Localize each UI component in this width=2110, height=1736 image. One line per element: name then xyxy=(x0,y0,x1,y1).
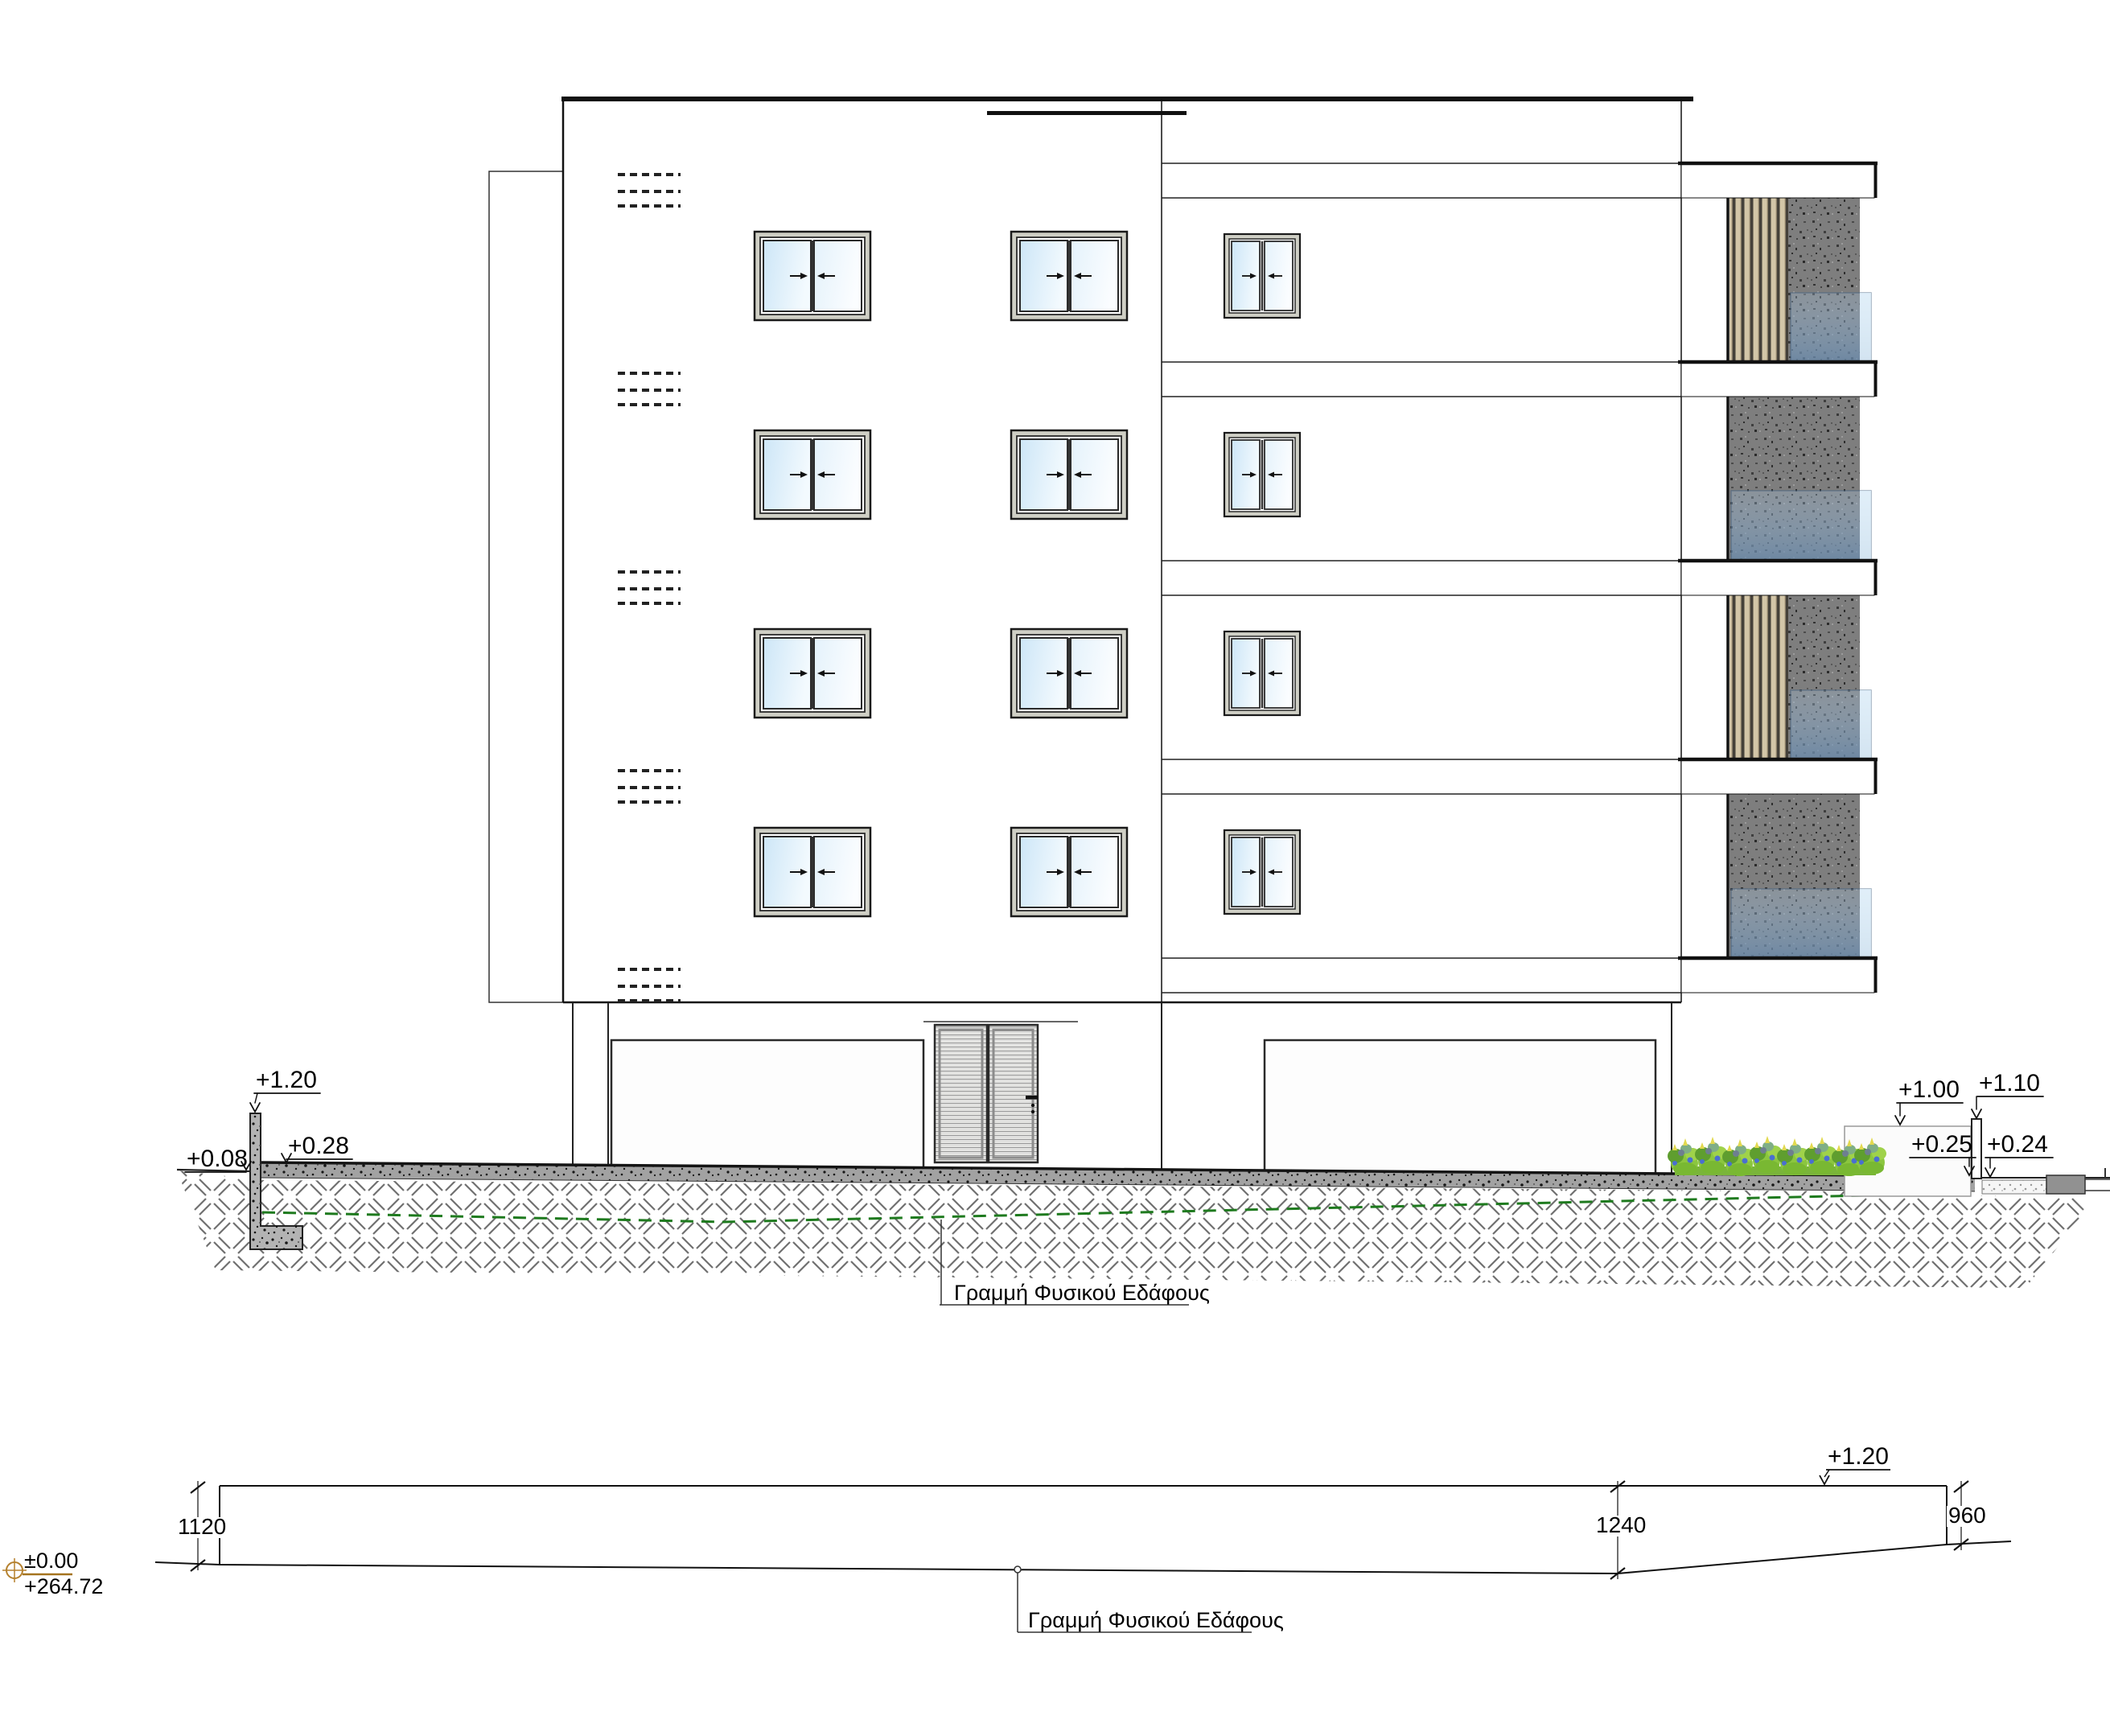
entrance-door-leaf xyxy=(935,1025,987,1162)
profile-outline xyxy=(155,1486,2011,1574)
street-kerb xyxy=(1981,1168,2110,1194)
dimension-depth-middle: 1240 xyxy=(1594,1481,1646,1579)
window xyxy=(1011,430,1127,519)
glass-railing xyxy=(1791,293,1871,362)
timber-slat-screen xyxy=(1730,595,1788,759)
door-handle xyxy=(1026,1096,1038,1100)
glass-railing-end xyxy=(1860,293,1871,362)
window xyxy=(1011,232,1127,320)
glass-railing-end xyxy=(1860,690,1871,759)
level-value: +0.08 xyxy=(187,1146,248,1172)
glass-railing-end xyxy=(1860,889,1871,958)
datum-elevation-text: +264.72 xyxy=(24,1574,103,1598)
architectural-drawing-sheet: +1.20 +0.08 +0.28 +1.00 xyxy=(0,0,2110,1736)
window xyxy=(755,232,870,320)
window xyxy=(1224,433,1300,516)
drawing-canvas: +1.20 +0.08 +0.28 +1.00 xyxy=(0,0,2110,1736)
level-street-right: +0.24 xyxy=(1985,1131,2053,1177)
facade-windows-small xyxy=(1224,234,1300,914)
facade-windows-large xyxy=(755,232,1127,916)
entrance-door xyxy=(935,1025,1038,1162)
datum-level-text: ±0.00 xyxy=(24,1549,78,1573)
level-pavement-left: +0.28 xyxy=(282,1133,352,1162)
level-value: +0.28 xyxy=(288,1133,349,1159)
profile-ground-line-label: Γραμμή Φυσικού Εδάφους xyxy=(1014,1566,1284,1632)
timber-slat-screen xyxy=(1730,198,1788,362)
site-ground xyxy=(177,1113,2110,1288)
ground-line-label-text: Γραμμή Φυσικού Εδάφους xyxy=(1028,1608,1284,1632)
window xyxy=(755,430,870,519)
window xyxy=(1224,234,1300,318)
ground-floor xyxy=(573,1002,1672,1175)
dimension-depth-right: 960 xyxy=(1947,1481,1986,1550)
window xyxy=(1224,830,1300,914)
level-profile-top: +1.20 xyxy=(1820,1443,1890,1484)
window xyxy=(755,629,870,718)
window xyxy=(1011,828,1127,916)
dimension-depth-left: 1120 xyxy=(175,1481,226,1571)
level-value: +1.10 xyxy=(1979,1070,2040,1096)
glass-railing-end xyxy=(1860,491,1871,561)
ground-line-label-text: Γραμμή Φυσικού Εδάφους xyxy=(954,1281,1210,1305)
window xyxy=(1011,629,1127,718)
dimension-value: 960 xyxy=(1948,1503,1986,1528)
level-retaining-wall-top: +1.20 xyxy=(250,1067,320,1112)
level-planter-wall-top: +1.00 xyxy=(1895,1076,1963,1125)
garage-door-right xyxy=(1265,1040,1656,1174)
glass-railing xyxy=(1731,889,1871,958)
entrance-door-leaf xyxy=(989,1025,1038,1162)
building-elevation: +1.20 +0.08 +0.28 +1.00 xyxy=(177,97,2110,1305)
window xyxy=(755,828,870,916)
vent-dash-marks xyxy=(618,175,681,1001)
datum-benchmark-icon xyxy=(2,1558,27,1582)
level-value: +1.00 xyxy=(1898,1076,1960,1103)
left-annex-wall xyxy=(489,171,563,1002)
glass-railing xyxy=(1791,690,1871,759)
ground-profile-section: 1120 1240 960 +1.20 xyxy=(2,1443,2011,1632)
roof-parapet-line xyxy=(561,97,1693,115)
level-value: +0.25 xyxy=(1911,1131,1972,1158)
level-value: +0.24 xyxy=(1987,1131,2048,1158)
level-natural-ground-left: +0.08 xyxy=(185,1146,251,1172)
balcony-stack xyxy=(1678,163,1878,993)
glass-railing xyxy=(1731,491,1871,561)
level-fence-post-top: +1.10 xyxy=(1972,1070,2043,1118)
garage-door-left xyxy=(611,1040,923,1168)
window xyxy=(1224,631,1300,715)
level-value: +1.20 xyxy=(1828,1443,1889,1470)
dimension-value: 1240 xyxy=(1596,1512,1646,1537)
dimension-value: 1120 xyxy=(178,1514,226,1539)
datum-benchmark: ±0.00 +264.72 xyxy=(2,1549,103,1598)
level-value: +1.20 xyxy=(256,1067,317,1093)
